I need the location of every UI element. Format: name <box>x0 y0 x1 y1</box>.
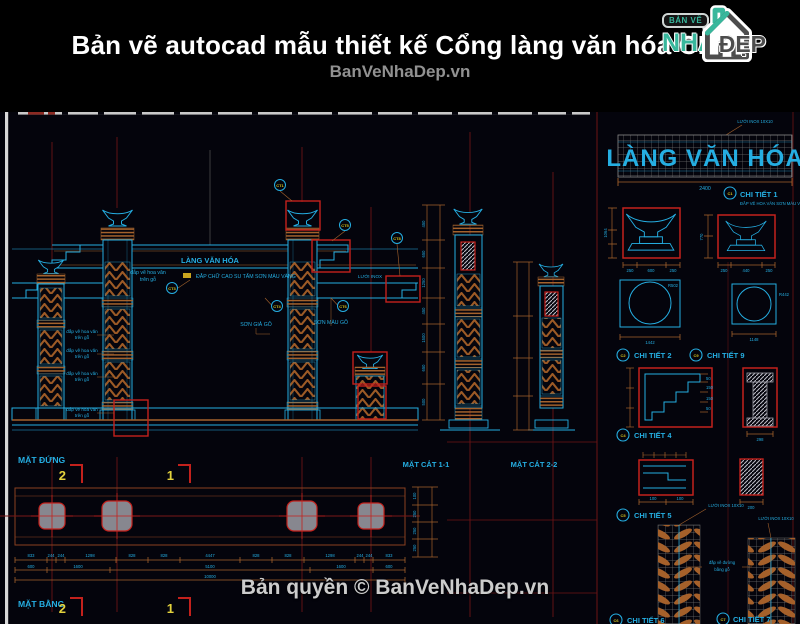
detail-note: ĐẮP VẼ HOA VĂN SƠN MÀU VÀNG <box>740 201 800 206</box>
detail-label: CHI TIẾT 9 <box>707 350 745 360</box>
elevation-vdims: 450 650 1250 450 1500 650 500 <box>421 205 445 420</box>
copyright-watermark: Bản quyền © BanVeNhaDep.vn <box>0 576 790 600</box>
logo-suffix: ĐẸP <box>719 31 766 58</box>
svg-text:298: 298 <box>757 437 765 442</box>
svg-text:244: 244 <box>366 553 374 558</box>
svg-text:1250: 1250 <box>421 278 426 288</box>
detail-label: CHI TIẾT 7 <box>733 614 771 624</box>
detail-1: C1 CHI TIẾT 1 ĐẮP VẼ HOA VĂN SƠN MÀU VÀN… <box>603 187 800 273</box>
sign-note: LƯỚI INOX 10X10 <box>737 119 773 124</box>
svg-text:600: 600 <box>648 268 656 273</box>
svg-text:244: 244 <box>357 553 365 558</box>
badge: CT4 <box>273 304 281 309</box>
svg-text:828: 828 <box>253 553 261 558</box>
svg-text:2: 2 <box>59 468 66 483</box>
svg-text:828: 828 <box>285 553 293 558</box>
detail-2: R502 1442 C2 CHI TIẾT 2 <box>617 280 680 361</box>
svg-text:trên gỗ: trên gỗ <box>75 412 90 418</box>
svg-text:500: 500 <box>421 398 426 406</box>
detail-label: CHI TIẾT 2 <box>634 350 672 360</box>
sign-dim: 2400 <box>699 186 711 192</box>
svg-text:1148: 1148 <box>749 337 759 342</box>
svg-text:650: 650 <box>421 364 426 372</box>
svg-text:100: 100 <box>412 492 417 500</box>
column-tall-left <box>100 210 135 420</box>
svg-text:450: 450 <box>421 307 426 315</box>
note: đắp vẽ đường <box>709 560 736 565</box>
svg-text:250: 250 <box>766 268 774 273</box>
svg-text:1600: 1600 <box>73 564 83 569</box>
svg-text:600: 600 <box>28 564 36 569</box>
note: đắp vẽ hoa văn <box>130 269 166 276</box>
column-tall-right <box>285 210 320 420</box>
svg-text:770: 770 <box>699 233 704 241</box>
detail-9: R442 1148 C9 CHI TIẾT 9 <box>690 284 790 361</box>
cad-drawing: LÀNG VĂN HÓA CT1 CT <box>0 112 800 624</box>
svg-text:440: 440 <box>743 268 751 273</box>
svg-text:1298: 1298 <box>85 553 95 558</box>
detail-5: 100 100 C5 CHI TIẾT 5 200 <box>617 452 763 521</box>
page: { "header": { "title": "Bản vẽ autocad m… <box>0 0 800 624</box>
svg-text:1064: 1064 <box>603 228 608 238</box>
svg-text:C2: C2 <box>620 353 626 358</box>
section-markers-top: 2 1 <box>59 465 190 483</box>
badge: CT5 <box>341 223 349 228</box>
svg-text:100: 100 <box>677 496 685 501</box>
detail-label: CHI TIẾT 1 <box>740 189 778 199</box>
sign-text: LÀNG VĂN HÓA <box>606 144 800 172</box>
svg-text:828: 828 <box>129 553 137 558</box>
svg-text:50: 50 <box>706 406 711 411</box>
svg-text:trên gỗ: trên gỗ <box>75 334 90 340</box>
svg-text:C5: C5 <box>620 513 626 518</box>
site-logo: BẢN VẼ NHÀ ĐẸP <box>662 4 762 66</box>
detail-label: CHI TIẾT 4 <box>634 430 672 440</box>
column-short-right <box>355 355 385 420</box>
svg-text:C6: C6 <box>613 618 619 623</box>
note: ĐẮP CHỮ CAO SU TẤM SƠN MÀU VÀNG <box>196 272 296 280</box>
right-panel: LƯỚI INOX 10X10 LÀNG VĂN HÓA 2400 C1 CHI… <box>603 119 800 624</box>
badge: CT3 <box>168 286 176 291</box>
detail-7: LƯỚI INOX 10X10 đắp vẽ đường bằng gỗ C7 … <box>686 516 795 624</box>
svg-text:833: 833 <box>386 553 394 558</box>
note: LƯỚI INOX 10X10 <box>758 516 794 521</box>
badge: CT1 <box>276 183 284 188</box>
svg-text:250: 250 <box>627 268 635 273</box>
svg-text:600: 600 <box>386 564 394 569</box>
svg-text:trên gỗ: trên gỗ <box>75 353 90 359</box>
svg-text:đắp vẽ hoa văn: đắp vẽ hoa văn <box>66 328 98 334</box>
svg-text:50: 50 <box>706 376 711 381</box>
svg-text:250: 250 <box>721 268 729 273</box>
view-label-section2: MẶT CẮT 2-2 <box>511 460 558 469</box>
badge: CT8 <box>393 236 401 241</box>
note: trên gỗ <box>140 276 156 283</box>
svg-text:C7: C7 <box>720 617 726 622</box>
note: bằng gỗ <box>714 567 730 572</box>
svg-text:5100: 5100 <box>205 564 215 569</box>
svg-text:650: 650 <box>421 250 426 258</box>
gate-sign-text: LÀNG VĂN HÓA <box>181 256 240 265</box>
view-label-elevation: MẶT ĐỨNG <box>18 454 66 465</box>
svg-text:đắp vẽ hoa văn: đắp vẽ hoa văn <box>66 406 98 412</box>
svg-text:trên gỗ: trên gỗ <box>75 376 90 382</box>
svg-text:250: 250 <box>670 268 678 273</box>
svg-text:R442: R442 <box>779 292 790 297</box>
svg-text:100: 100 <box>650 496 658 501</box>
svg-text:2: 2 <box>59 601 66 616</box>
svg-text:833: 833 <box>28 553 36 558</box>
view-label-section1: MẶT CẮT 1-1 <box>403 460 450 469</box>
detail-4: 50 150 150 50 C4 CHI TIẾT 4 298 <box>617 368 777 442</box>
svg-text:đắp vẽ hoa văn: đắp vẽ hoa văn <box>66 370 98 376</box>
svg-text:1: 1 <box>167 601 174 616</box>
column-short-left <box>36 260 66 420</box>
detail-label: CHI TIẾT 6 <box>627 615 665 624</box>
section-2-2: MẶT CẮT 2-2 <box>511 262 575 469</box>
plan-vdims: 100 250 250 250 <box>412 487 438 557</box>
detail-label: CHI TIẾT 5 <box>634 510 672 520</box>
svg-text:4447: 4447 <box>205 553 215 558</box>
svg-text:C1: C1 <box>727 191 733 196</box>
badge: CT6 <box>339 304 347 309</box>
svg-text:450: 450 <box>421 220 426 228</box>
svg-text:C9: C9 <box>693 353 699 358</box>
svg-text:1500: 1500 <box>421 333 426 343</box>
svg-text:828: 828 <box>161 553 169 558</box>
note: LƯỚI INOX <box>358 273 382 279</box>
view-label-plan: MẶT BẰNG <box>18 599 65 609</box>
svg-text:250: 250 <box>412 510 417 518</box>
svg-text:150: 150 <box>706 396 714 401</box>
svg-text:1442: 1442 <box>645 340 655 345</box>
svg-text:1600: 1600 <box>336 564 346 569</box>
svg-text:250: 250 <box>412 527 417 535</box>
note: LƯỚI INOX 10X10 <box>708 503 744 508</box>
main-elevation: LÀNG VĂN HÓA CT1 CT <box>12 180 445 466</box>
sign-board: LƯỚI INOX 10X10 LÀNG VĂN HÓA 2400 <box>606 119 800 192</box>
centerlines <box>52 132 728 617</box>
svg-text:đắp vẽ hoa văn: đắp vẽ hoa văn <box>66 347 98 353</box>
svg-text:244: 244 <box>58 553 66 558</box>
svg-text:1: 1 <box>167 468 174 483</box>
svg-text:1298: 1298 <box>325 553 335 558</box>
svg-text:250: 250 <box>412 544 417 552</box>
svg-text:C4: C4 <box>620 433 626 438</box>
section-markers-bottom: 2 1 <box>59 598 190 616</box>
svg-text:R502: R502 <box>668 283 679 288</box>
svg-text:244: 244 <box>48 553 56 558</box>
note: SƠN GIẢ GỖ <box>240 321 272 328</box>
svg-text:200: 200 <box>748 505 756 510</box>
svg-text:150: 150 <box>706 385 714 390</box>
